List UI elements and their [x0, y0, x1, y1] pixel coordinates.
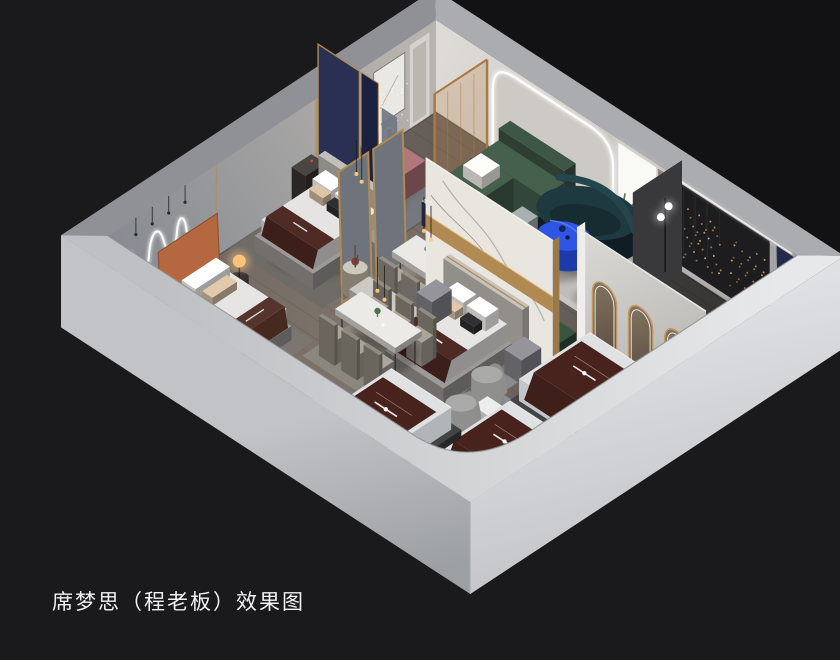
showroom-3d-render: [0, 0, 840, 660]
caption-text: 席梦思（程老板）效果图: [52, 586, 305, 616]
showroom-render-page: 席梦思（程老板）效果图: [0, 0, 840, 660]
